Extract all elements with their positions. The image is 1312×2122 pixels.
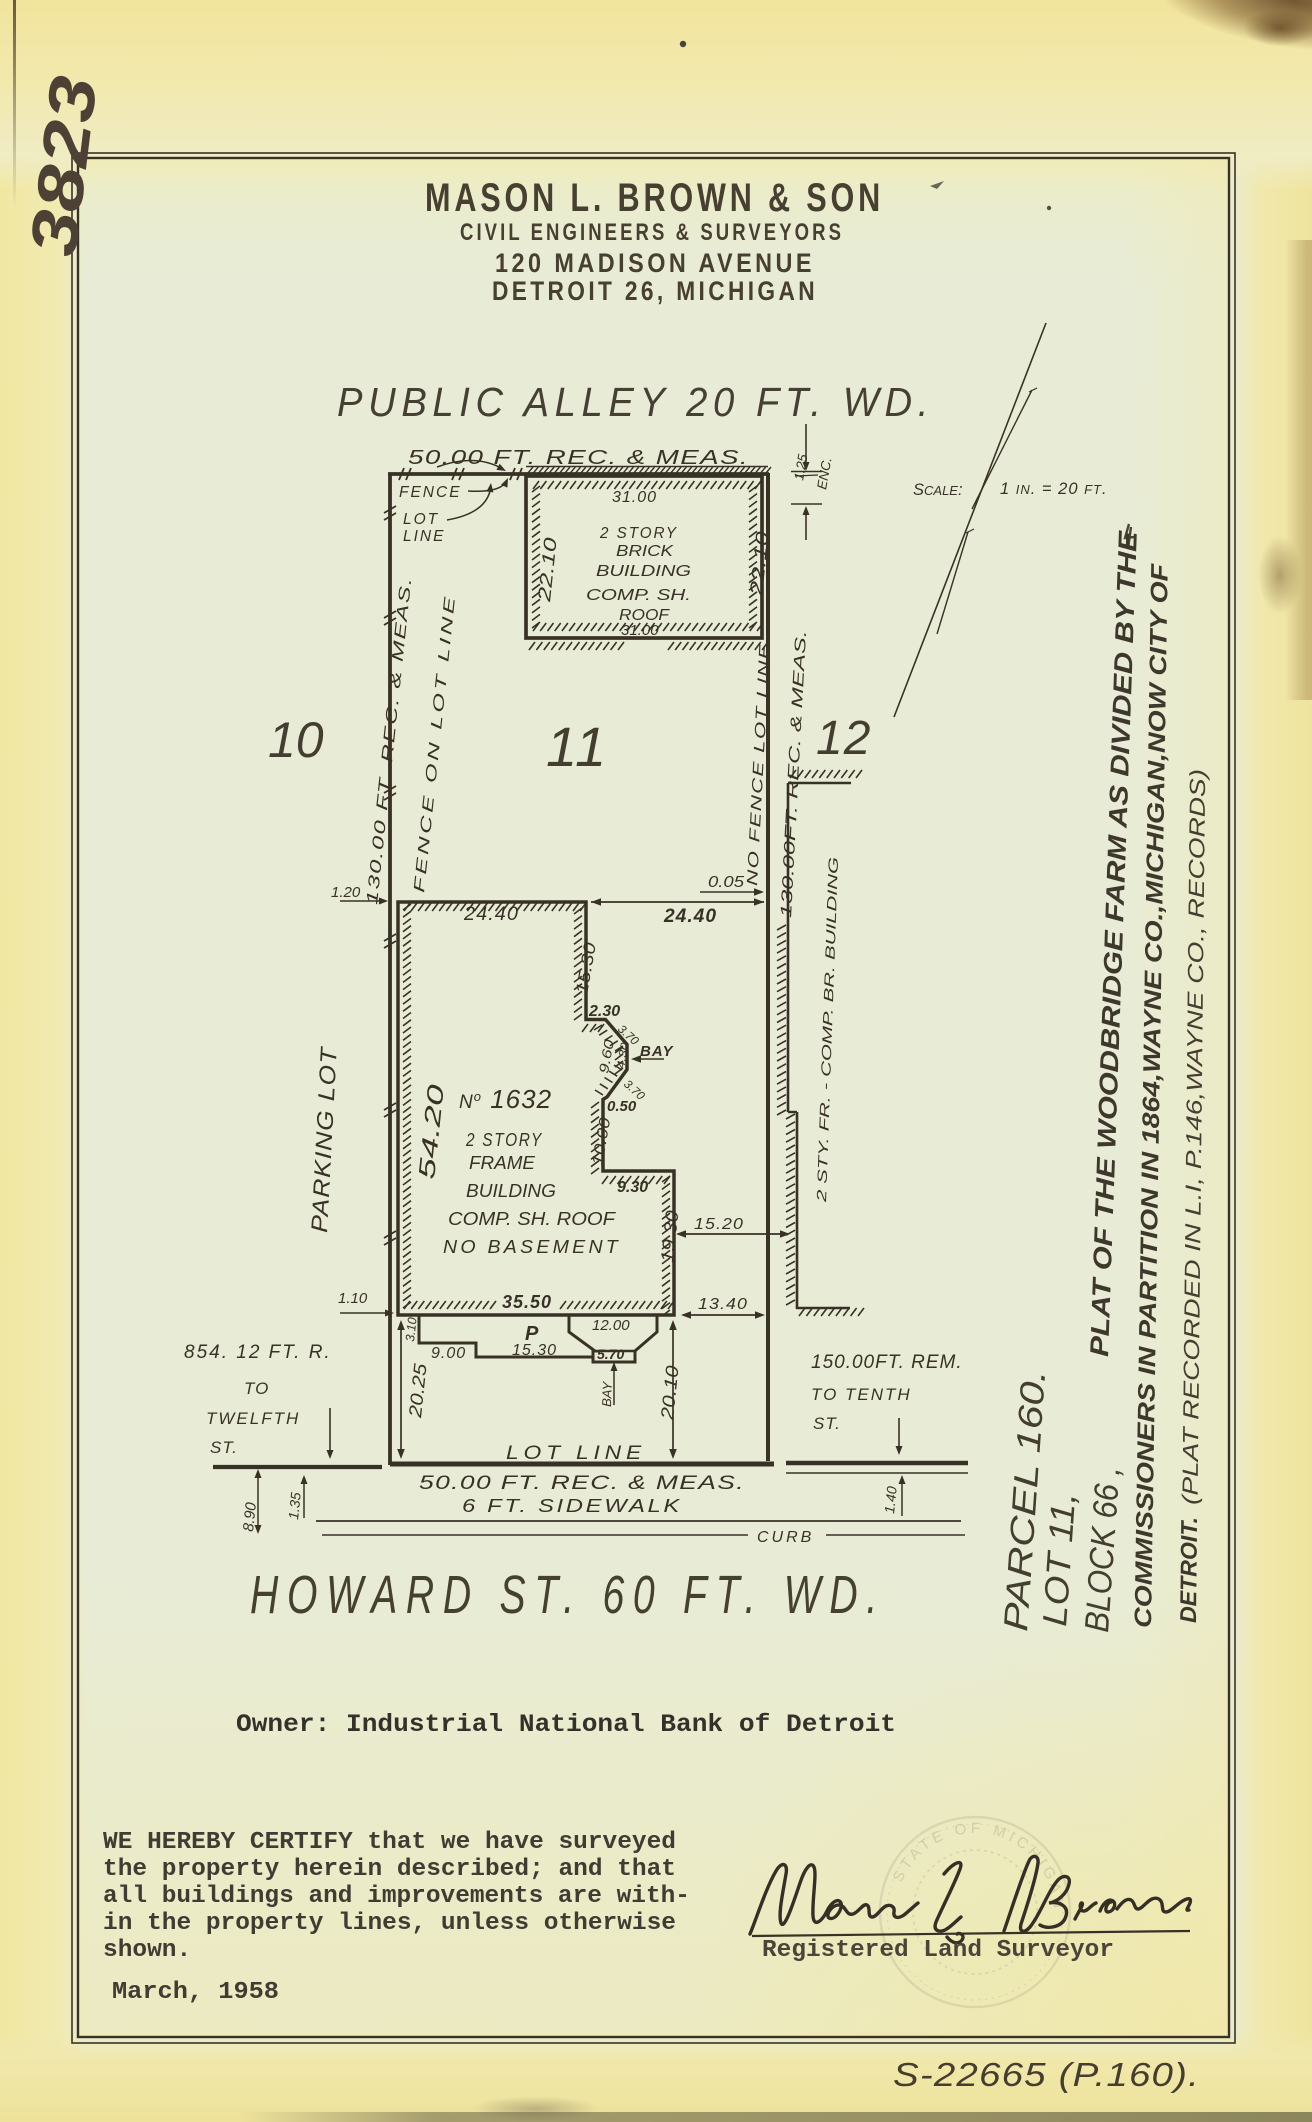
svg-text:COMP. SH.: COMP. SH. <box>586 587 691 604</box>
svg-text:2 STORY: 2 STORY <box>465 1130 543 1150</box>
svg-text:1.40: 1.40 <box>881 1485 900 1514</box>
svg-text:1.20: 1.20 <box>331 884 361 901</box>
svg-text:BRICK: BRICK <box>616 543 674 560</box>
svg-text:Owner: Industrial National Ba: Owner: Industrial National Bank of Detro… <box>236 1710 896 1739</box>
svg-text:31.00: 31.00 <box>612 489 657 506</box>
svg-text:130.00FT. REC. & MEAS.: 130.00FT. REC. & MEAS. <box>778 630 810 918</box>
svg-text:shown.: shown. <box>103 1937 191 1964</box>
svg-text:13.40: 13.40 <box>698 1296 748 1313</box>
svg-text:LOT LINE: LOT LINE <box>506 1443 646 1464</box>
svg-text:50.00 FT. REC. & MEAS.: 50.00 FT. REC. & MEAS. <box>419 1473 745 1494</box>
svg-text:Registered Land Surveyor: Registered Land Surveyor <box>762 1937 1114 1964</box>
svg-text:854. 12 FT. R.: 854. 12 FT. R. <box>184 1342 332 1363</box>
svg-text:in the property lines, unless: in the property lines, unless otherwise <box>103 1910 676 1937</box>
svg-text:20.25: 20.25 <box>405 1361 431 1419</box>
svg-text:S-22665 (P.160).: S-22665 (P.160). <box>893 2056 1200 2093</box>
svg-text:2.30: 2.30 <box>588 1003 620 1020</box>
svg-text:50.00 FT. REC. & MEAS.: 50.00 FT. REC. & MEAS. <box>408 447 749 469</box>
svg-text:BAY: BAY <box>640 1043 675 1060</box>
svg-text:1 IN. = 20 FT.: 1 IN. = 20 FT. <box>1000 480 1108 498</box>
svg-text:FRAME: FRAME <box>469 1153 536 1173</box>
svg-text:STATE OF MICHIGAN: STATE OF MICHIGAN <box>890 1820 1068 1913</box>
svg-text:24.40: 24.40 <box>663 906 717 927</box>
svg-text:ENC.: ENC. <box>814 456 834 490</box>
svg-text:35.50: 35.50 <box>502 1292 552 1312</box>
svg-text:0.50: 0.50 <box>607 1098 637 1115</box>
svg-text:BUILDING: BUILDING <box>466 1181 556 1201</box>
svg-text:HOWARD ST. 60 FT. WD.: HOWARD ST. 60 FT. WD. <box>250 1565 886 1625</box>
svg-text:1.25: 1.25 <box>791 453 810 482</box>
svg-text:NO BASEMENT: NO BASEMENT <box>443 1237 621 1257</box>
svg-text:22.10: 22.10 <box>534 537 561 604</box>
svg-text:BAY: BAY <box>599 1380 615 1407</box>
svg-text:3.10: 3.10 <box>403 1317 419 1343</box>
svg-text:ST.: ST. <box>813 1414 841 1433</box>
svg-text:TO: TO <box>244 1379 269 1398</box>
svg-text:6 FT. SIDEWALK: 6 FT. SIDEWALK <box>462 1496 682 1516</box>
svg-text:12.00: 12.00 <box>592 1317 630 1334</box>
svg-text:PLAT OF THE WOODBRIDGE FARM AS: PLAT OF THE WOODBRIDGE FARM AS DIVIDED B… <box>1084 530 1143 1357</box>
svg-text:the property herein described;: the property herein described; and that <box>103 1856 676 1883</box>
svg-text:PUBLIC ALLEY 20 FT. WD.: PUBLIC ALLEY 20 FT. WD. <box>337 379 934 425</box>
svg-text:ST.: ST. <box>210 1438 238 1457</box>
svg-text:BLOCK 66 ,: BLOCK 66 , <box>1078 1465 1127 1633</box>
svg-text:150.00FT. REM.: 150.00FT. REM. <box>811 1352 963 1373</box>
svg-text:9.00: 9.00 <box>431 1345 466 1362</box>
svg-text:11: 11 <box>546 715 608 778</box>
svg-text:FENCE ON LOT LINE: FENCE ON LOT LINE <box>411 593 459 893</box>
svg-text:3823: 3823 <box>15 72 110 260</box>
svg-text:20.10: 20.10 <box>657 1365 683 1422</box>
svg-text:10.00: 10.00 <box>589 1116 614 1167</box>
svg-text:5.70: 5.70 <box>597 1346 624 1362</box>
svg-text:BUILDING: BUILDING <box>596 563 691 580</box>
svg-text:10: 10 <box>268 712 324 768</box>
svg-text:9.30: 9.30 <box>617 1179 648 1196</box>
svg-text:COMMISSIONERS IN PARTITION IN: COMMISSIONERS IN PARTITION IN 1864,WAYNE… <box>1130 562 1174 1628</box>
svg-text:LOT: LOT <box>403 511 439 528</box>
svg-text:2 STORY: 2 STORY <box>599 525 678 542</box>
svg-text:LINE: LINE <box>403 528 445 545</box>
svg-text:120 MADISON AVENUE: 120 MADISON AVENUE <box>495 248 815 278</box>
svg-text:PARKING LOT: PARKING LOT <box>306 1045 342 1233</box>
svg-text:SCALE:: SCALE: <box>913 481 963 499</box>
svg-text:COMP. SH. ROOF: COMP. SH. ROOF <box>448 1209 616 1229</box>
svg-text:15.20: 15.20 <box>694 1216 744 1233</box>
svg-text:March, 1958: March, 1958 <box>112 1979 279 2006</box>
svg-text:TWELFTH: TWELFTH <box>206 1409 300 1428</box>
svg-text:0.05: 0.05 <box>708 874 744 891</box>
svg-text:No 1632: No 1632 <box>459 1084 552 1114</box>
svg-text:MASON L. BROWN & SON: MASON L. BROWN & SON <box>425 176 884 220</box>
svg-text:all buildings and improvements: all buildings and improvements are with- <box>103 1883 690 1910</box>
svg-text:19.30: 19.30 <box>657 1210 682 1264</box>
svg-text:15.30: 15.30 <box>572 941 600 996</box>
svg-text:1.10: 1.10 <box>338 1290 368 1307</box>
svg-text:(PLAT RECORDED IN L.I, P.146,W: (PLAT RECORDED IN L.I, P.146,WAYNE CO., … <box>1178 769 1211 1505</box>
svg-text:4.30: 4.30 <box>615 1041 632 1070</box>
svg-text:2 STY. FR. - COMP. BR. BUIL: 2 STY. FR. - COMP. BR. BUILDING <box>814 857 841 1204</box>
svg-text:DETROIT.: DETROIT. <box>1175 1517 1202 1623</box>
svg-text:31.00: 31.00 <box>621 622 659 639</box>
svg-text:LOT 11,: LOT 11, <box>1036 1491 1083 1627</box>
svg-text:12: 12 <box>816 712 871 765</box>
svg-text:DETROIT 26, MICHIGAN: DETROIT 26, MICHIGAN <box>492 276 818 306</box>
svg-text:TO TENTH: TO TENTH <box>811 1385 912 1404</box>
svg-text:54.20: 54.20 <box>413 1083 449 1181</box>
svg-text:CURB: CURB <box>757 1529 814 1546</box>
svg-text:CIVIL ENGINEERS & SURVEYORS: CIVIL ENGINEERS & SURVEYORS <box>460 219 844 246</box>
svg-text:9.60: 9.60 <box>596 1038 617 1075</box>
svg-text:15.30: 15.30 <box>512 1342 557 1359</box>
svg-text:WE HEREBY CERTIFY that we have: WE HEREBY CERTIFY that we have surveyed <box>103 1829 676 1856</box>
svg-text:1.35: 1.35 <box>285 1491 304 1520</box>
svg-text:FENCE: FENCE <box>399 484 462 501</box>
